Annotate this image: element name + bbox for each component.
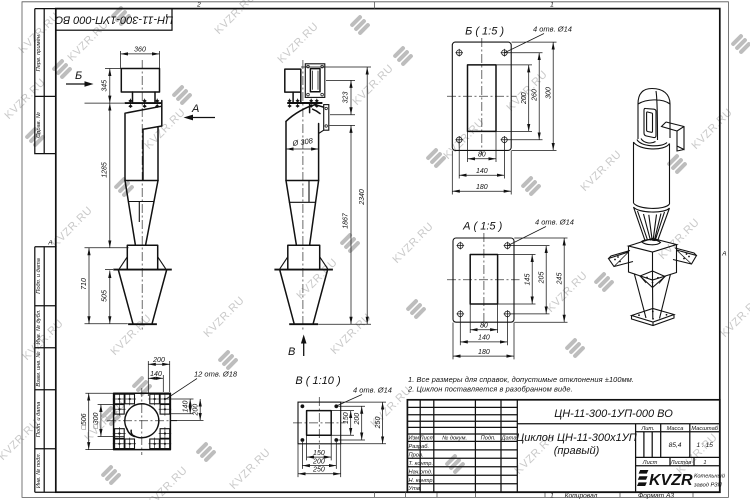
svg-text:2340: 2340 [359, 189, 366, 206]
svg-text:245: 245 [556, 273, 563, 286]
svg-text:Подп. и дата: Подп. и дата [36, 258, 42, 294]
svg-text:140: 140 [478, 335, 490, 342]
svg-text:Лист: Лист [419, 436, 435, 442]
svg-text:2: 2 [196, 2, 201, 9]
svg-text:ЦН-11-300-1УП-000 ВО: ЦН-11-300-1УП-000 ВО [554, 408, 673, 420]
svg-text:А: А [47, 240, 53, 247]
svg-text:1: 1 [550, 1, 554, 8]
svg-text:Циклон ЦН-11-300х1УП: Циклон ЦН-11-300х1УП [516, 432, 636, 444]
svg-text:Масса: Масса [667, 426, 684, 432]
svg-text:Т. контр.: Т. контр. [409, 461, 434, 467]
svg-text:710: 710 [81, 278, 88, 290]
svg-text:□506: □506 [81, 413, 88, 429]
svg-text:505: 505 [102, 290, 109, 302]
svg-text:300: 300 [545, 87, 552, 99]
svg-text:200: 200 [192, 404, 199, 417]
svg-text:Взам. инв. №: Взам. инв. № [36, 351, 42, 386]
svg-text:Листов: Листов [670, 460, 692, 466]
svg-text:12 отв. Ø18: 12 отв. Ø18 [194, 370, 238, 379]
svg-text:200: 200 [521, 92, 528, 105]
svg-text:345: 345 [102, 80, 109, 92]
svg-text:А: А [721, 251, 727, 258]
svg-text:80: 80 [478, 152, 486, 159]
svg-text:200: 200 [354, 413, 361, 426]
svg-text:200: 200 [152, 357, 165, 364]
svg-text:Нач.отд.: Нач.отд. [409, 469, 433, 475]
svg-text:140: 140 [182, 401, 189, 413]
svg-text:ЦН-11-300-1УП-000 ВО: ЦН-11-300-1УП-000 ВО [54, 14, 173, 26]
svg-text:Н. контр.: Н. контр. [409, 478, 435, 484]
svg-text:Б: Б [75, 70, 82, 82]
svg-text:140: 140 [150, 371, 162, 378]
svg-text:Разраб.: Разраб. [409, 444, 430, 450]
svg-text:KVZR: KVZR [649, 472, 693, 489]
svg-text:Котельный: Котельный [694, 473, 726, 480]
svg-text:Копировал: Копировал [565, 492, 598, 499]
svg-text:4 отв. Ø14: 4 отв. Ø14 [535, 218, 574, 227]
svg-text:Инв. № дубл.: Инв. № дубл. [36, 310, 42, 345]
svg-text:323: 323 [342, 92, 349, 104]
svg-text:1867: 1867 [343, 212, 350, 229]
svg-text:4 отв. Ø14: 4 отв. Ø14 [353, 386, 392, 395]
svg-text:250: 250 [375, 417, 382, 430]
svg-text:1. Все размеры для справок, до: 1. Все размеры для справок, допустимые о… [408, 375, 634, 384]
svg-text:150: 150 [313, 450, 325, 457]
svg-text:А: А [191, 103, 199, 115]
svg-text:А ( 1:5 ): А ( 1:5 ) [462, 221, 502, 233]
svg-text:Б ( 1:5 ): Б ( 1:5 ) [465, 26, 504, 38]
svg-text:(правый): (правый) [554, 445, 600, 457]
svg-text:Формат А3: Формат А3 [638, 492, 674, 499]
svg-text:завод РЗП: завод РЗП [693, 483, 723, 489]
svg-text:360: 360 [134, 47, 146, 54]
svg-text:Утв.: Утв. [408, 486, 422, 492]
svg-text:2. Циклон поставляется в разоб: 2. Циклон поставляется в разобранном вид… [407, 385, 573, 394]
svg-text:Пров.: Пров. [409, 452, 424, 458]
svg-text:Справ. №: Справ. № [36, 112, 42, 138]
svg-text:180: 180 [478, 349, 490, 356]
svg-text:Изм: Изм [409, 436, 420, 442]
svg-text:150: 150 [343, 412, 350, 424]
svg-text:В: В [288, 346, 295, 358]
svg-text:Перв. примен.: Перв. примен. [36, 34, 42, 72]
svg-text:250: 250 [312, 467, 325, 474]
svg-text:Масштаб: Масштаб [691, 426, 718, 432]
svg-text:Инв. № подл.: Инв. № подл. [36, 453, 42, 488]
svg-text:180: 180 [476, 184, 488, 191]
svg-text:4 отв. Ø14: 4 отв. Ø14 [533, 25, 572, 34]
svg-text:В ( 1:10 ): В ( 1:10 ) [295, 375, 341, 387]
svg-text:Дата: Дата [500, 436, 516, 442]
svg-text:200: 200 [312, 458, 325, 465]
svg-text:1: 1 [703, 460, 706, 466]
svg-text:205: 205 [538, 272, 545, 285]
svg-text:1285: 1285 [102, 162, 109, 178]
svg-text:80: 80 [480, 322, 488, 329]
svg-text:Лит.: Лит. [640, 426, 654, 432]
svg-text:Лист: Лист [642, 460, 658, 466]
svg-text:Подп. и дата: Подп. и дата [36, 402, 42, 438]
svg-text:145: 145 [524, 274, 531, 286]
svg-text:85,4: 85,4 [669, 442, 682, 449]
svg-text:1 : 15: 1 : 15 [696, 442, 713, 449]
svg-text:1: 1 [550, 492, 554, 499]
svg-text:□300: □300 [93, 412, 100, 428]
svg-text:Подп.: Подп. [481, 436, 496, 442]
svg-text:№ докум.: № докум. [442, 436, 467, 442]
svg-text:260: 260 [531, 89, 538, 102]
svg-text:140: 140 [476, 168, 488, 175]
